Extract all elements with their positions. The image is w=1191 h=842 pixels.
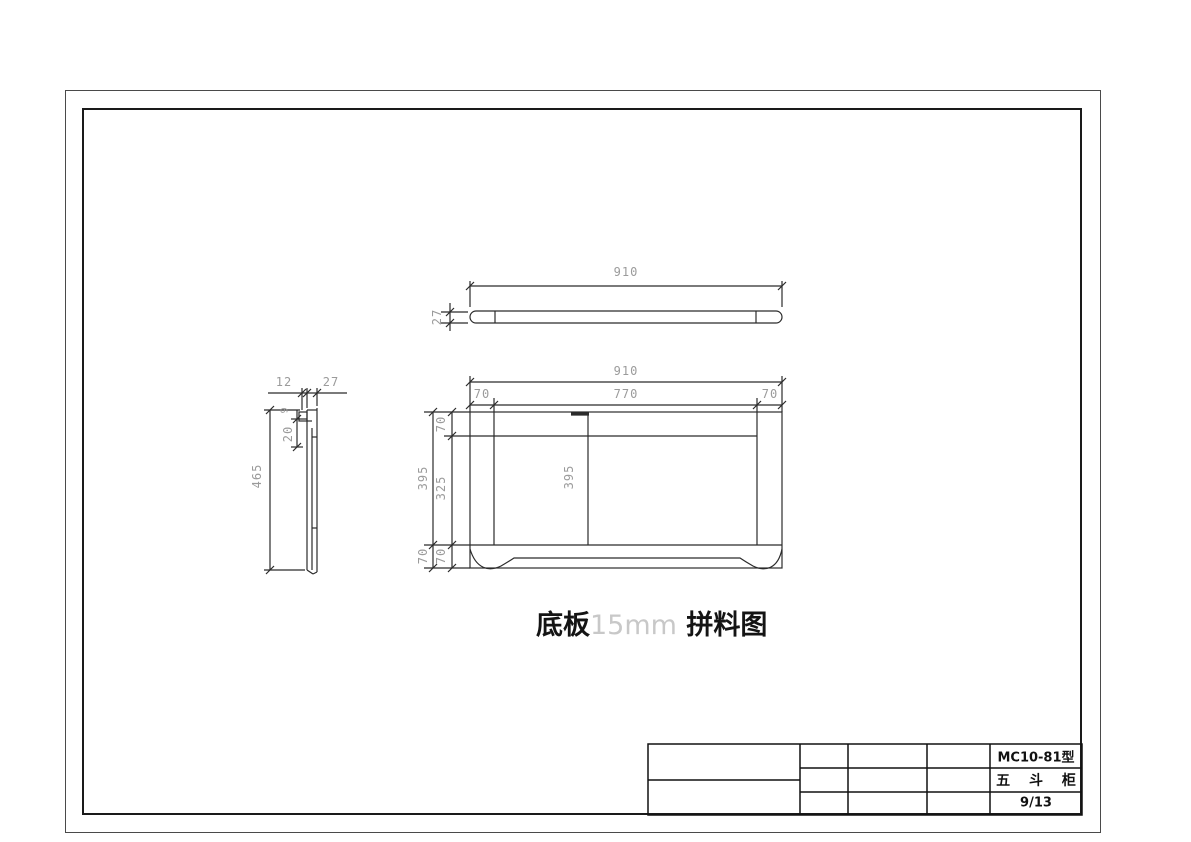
- dim-side-notch: 9: [280, 406, 291, 413]
- side-view: [264, 388, 347, 574]
- title-block-model: MC10-81型: [997, 747, 1074, 766]
- dim-top-length: 910: [614, 265, 639, 279]
- drawing-title-part: 底板: [536, 610, 590, 641]
- drawing-sheet: 910 27 12 27 465 20 9 910 70 770 70 395 …: [0, 0, 1191, 842]
- dim-side-thickness: 27: [323, 375, 339, 389]
- dim-front-bottom-rail-inner: 70: [434, 548, 448, 564]
- front-view: [424, 376, 786, 572]
- drawing-title: 底板15mm 拼料图: [536, 603, 767, 642]
- dim-front-bottom-rail-outer: 70: [416, 548, 430, 564]
- dim-side-height: 465: [250, 464, 264, 489]
- dim-front-right-leg: 70: [762, 387, 778, 401]
- dim-front-left-leg: 70: [474, 387, 490, 401]
- dim-top-thickness: 27: [430, 309, 444, 325]
- dim-front-opening: 325: [434, 476, 448, 501]
- dim-side-offset: 20: [281, 426, 295, 442]
- drawing-title-thickness: 15mm: [590, 610, 677, 641]
- dim-front-center-height: 395: [562, 465, 576, 490]
- dim-front-total-width: 910: [614, 364, 639, 378]
- dim-front-height-outer: 395: [416, 466, 430, 491]
- top-view: [441, 281, 786, 331]
- drawing-title-type: 拼料图: [677, 610, 767, 641]
- title-block-sheet: 9/13: [1020, 796, 1052, 811]
- title-block-product: 五 斗 柜: [989, 770, 1083, 790]
- dim-front-middle-span: 770: [614, 387, 639, 401]
- drawing-linework: [0, 0, 1191, 842]
- dim-side-edge: 12: [276, 375, 292, 389]
- dim-front-top-rail: 70: [434, 416, 448, 432]
